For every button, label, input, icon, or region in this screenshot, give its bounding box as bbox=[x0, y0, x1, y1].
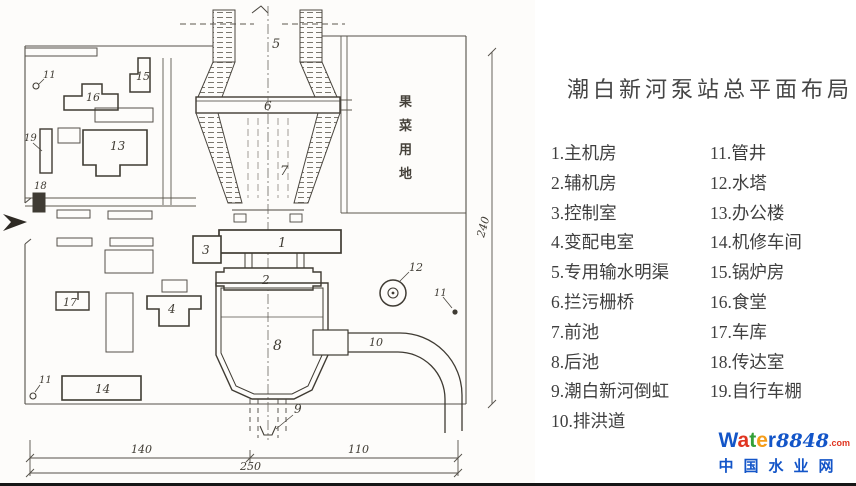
dim-250: 250 bbox=[239, 460, 261, 473]
plan-label-4: 4 bbox=[167, 302, 176, 316]
legend-item-16: 16.食堂 bbox=[710, 288, 856, 318]
flood-channel-10: 10 bbox=[313, 330, 462, 433]
plan-label-10: 10 bbox=[369, 336, 383, 349]
svg-text:菜: 菜 bbox=[398, 118, 412, 134]
break-mark bbox=[252, 6, 268, 13]
legend-item-9: 9.潮白新河倒虹 bbox=[551, 377, 709, 407]
well-11-right: 11 bbox=[434, 288, 458, 315]
plan-label-16: 16 bbox=[86, 91, 100, 104]
plan-label-8: 8 bbox=[273, 338, 282, 354]
plan-label-2: 2 bbox=[261, 273, 270, 287]
legend-item-3: 3.控制室 bbox=[551, 199, 709, 229]
area-note: 果 菜 用 地 bbox=[398, 95, 412, 182]
legend-item-8: 8.后池 bbox=[551, 348, 709, 378]
dim-140: 140 bbox=[131, 443, 152, 456]
logo-tld: .com bbox=[829, 438, 850, 448]
legend-item-7: 7.前池 bbox=[551, 318, 709, 348]
transformer-room-4: 4 bbox=[147, 296, 201, 326]
legend-item-11: 11.管井 bbox=[710, 139, 856, 169]
plan-label-11a: 11 bbox=[434, 288, 447, 299]
svg-text:地: 地 bbox=[399, 166, 412, 182]
logo-letter-w: W bbox=[718, 429, 737, 452]
legend-item-1: 1.主机房 bbox=[551, 139, 709, 169]
office-building-13: 13 bbox=[83, 130, 147, 176]
gatehouse-18: 18 bbox=[33, 181, 47, 212]
logo-letter-e: e bbox=[756, 429, 768, 452]
legend-item-13: 13.办公楼 bbox=[710, 199, 856, 229]
plan-label-1: 1 bbox=[278, 236, 286, 251]
logo-letter-a: a bbox=[738, 429, 750, 452]
page-title: 潮白新河泵站总平面布局 bbox=[567, 72, 852, 104]
plan-label-19: 19 bbox=[24, 133, 37, 144]
back-pool-8: 8 bbox=[216, 283, 328, 399]
logo-tagline: 中国水业网 bbox=[718, 455, 850, 476]
legend-item-17: 17.车库 bbox=[710, 318, 856, 348]
logo-number: 8848 bbox=[776, 430, 829, 452]
well-11-top-left: 11 bbox=[33, 70, 56, 89]
boiler-house-15: 15 bbox=[130, 58, 150, 92]
legend-item-19: 19.自行车棚 bbox=[710, 377, 856, 407]
plan-label-9: 9 bbox=[294, 402, 302, 416]
entrance-arrow-icon bbox=[3, 214, 27, 231]
channel-5: 5 bbox=[198, 6, 337, 97]
legend-item-2: 2.辅机房 bbox=[551, 169, 709, 199]
legend-item-12: 12.水塔 bbox=[710, 169, 856, 199]
legend-column-right: 11.管井 12.水塔 13.办公楼 14.机修车间 15.锅炉房 16.食堂 … bbox=[710, 139, 856, 407]
plan-label-3: 3 bbox=[202, 243, 210, 257]
legend-item-10: 10.排洪道 bbox=[551, 407, 709, 437]
legend-item-4: 4.变配电室 bbox=[551, 228, 709, 258]
aux-pump-house-2: 2 bbox=[216, 268, 321, 290]
plan-label-11b: 11 bbox=[43, 70, 56, 81]
plan-label-13: 13 bbox=[110, 139, 126, 153]
dim-240: 240 bbox=[474, 215, 492, 240]
gallery-connectors bbox=[245, 253, 304, 268]
siphon-9: 9 bbox=[250, 399, 302, 438]
plan-label-15: 15 bbox=[136, 70, 150, 83]
water-tower-12: 12 bbox=[380, 261, 423, 306]
screenshot-root: 5 6 7 1 bbox=[0, 0, 856, 486]
legend-item-5: 5.专用输水明渠 bbox=[551, 258, 709, 288]
legend-column-left: 1.主机房 2.辅机房 3.控制室 4.变配电室 5.专用输水明渠 6.拦污栅桥… bbox=[551, 139, 709, 437]
well-11-bottom-left: 11 bbox=[30, 375, 52, 399]
plan-label-12: 12 bbox=[409, 261, 423, 274]
legend-item-15: 15.锅炉房 bbox=[710, 258, 856, 288]
dim-110: 110 bbox=[348, 443, 369, 456]
control-room-3: 3 bbox=[193, 236, 221, 263]
canteen-16: 16 bbox=[64, 84, 118, 110]
water8848-logo: Water8848.com 中国水业网 bbox=[718, 431, 850, 476]
svg-text:果: 果 bbox=[398, 95, 412, 110]
plan-label-14: 14 bbox=[95, 382, 110, 396]
plan-label-11c: 11 bbox=[39, 375, 52, 386]
plan-label-17: 17 bbox=[63, 296, 77, 309]
bike-shed-19: 19 bbox=[24, 129, 52, 173]
plan-label-18: 18 bbox=[34, 181, 47, 192]
legend-item-14: 14.机修车间 bbox=[710, 228, 856, 258]
svg-text:用: 用 bbox=[398, 143, 412, 158]
site-plan: 5 6 7 1 bbox=[0, 0, 535, 486]
garage-17: 17 bbox=[56, 292, 89, 310]
legend-item-18: 18.传达室 bbox=[710, 348, 856, 378]
logo-wordmark: Water8848.com bbox=[718, 431, 850, 453]
logo-letter-r: r bbox=[768, 429, 776, 452]
plan-label-7: 7 bbox=[280, 164, 289, 179]
legend-item-6: 6.拦污栅桥 bbox=[551, 288, 709, 318]
repair-workshop-14: 14 bbox=[62, 376, 141, 400]
plan-label-5: 5 bbox=[272, 37, 280, 52]
main-pump-house-1: 1 bbox=[219, 230, 341, 253]
